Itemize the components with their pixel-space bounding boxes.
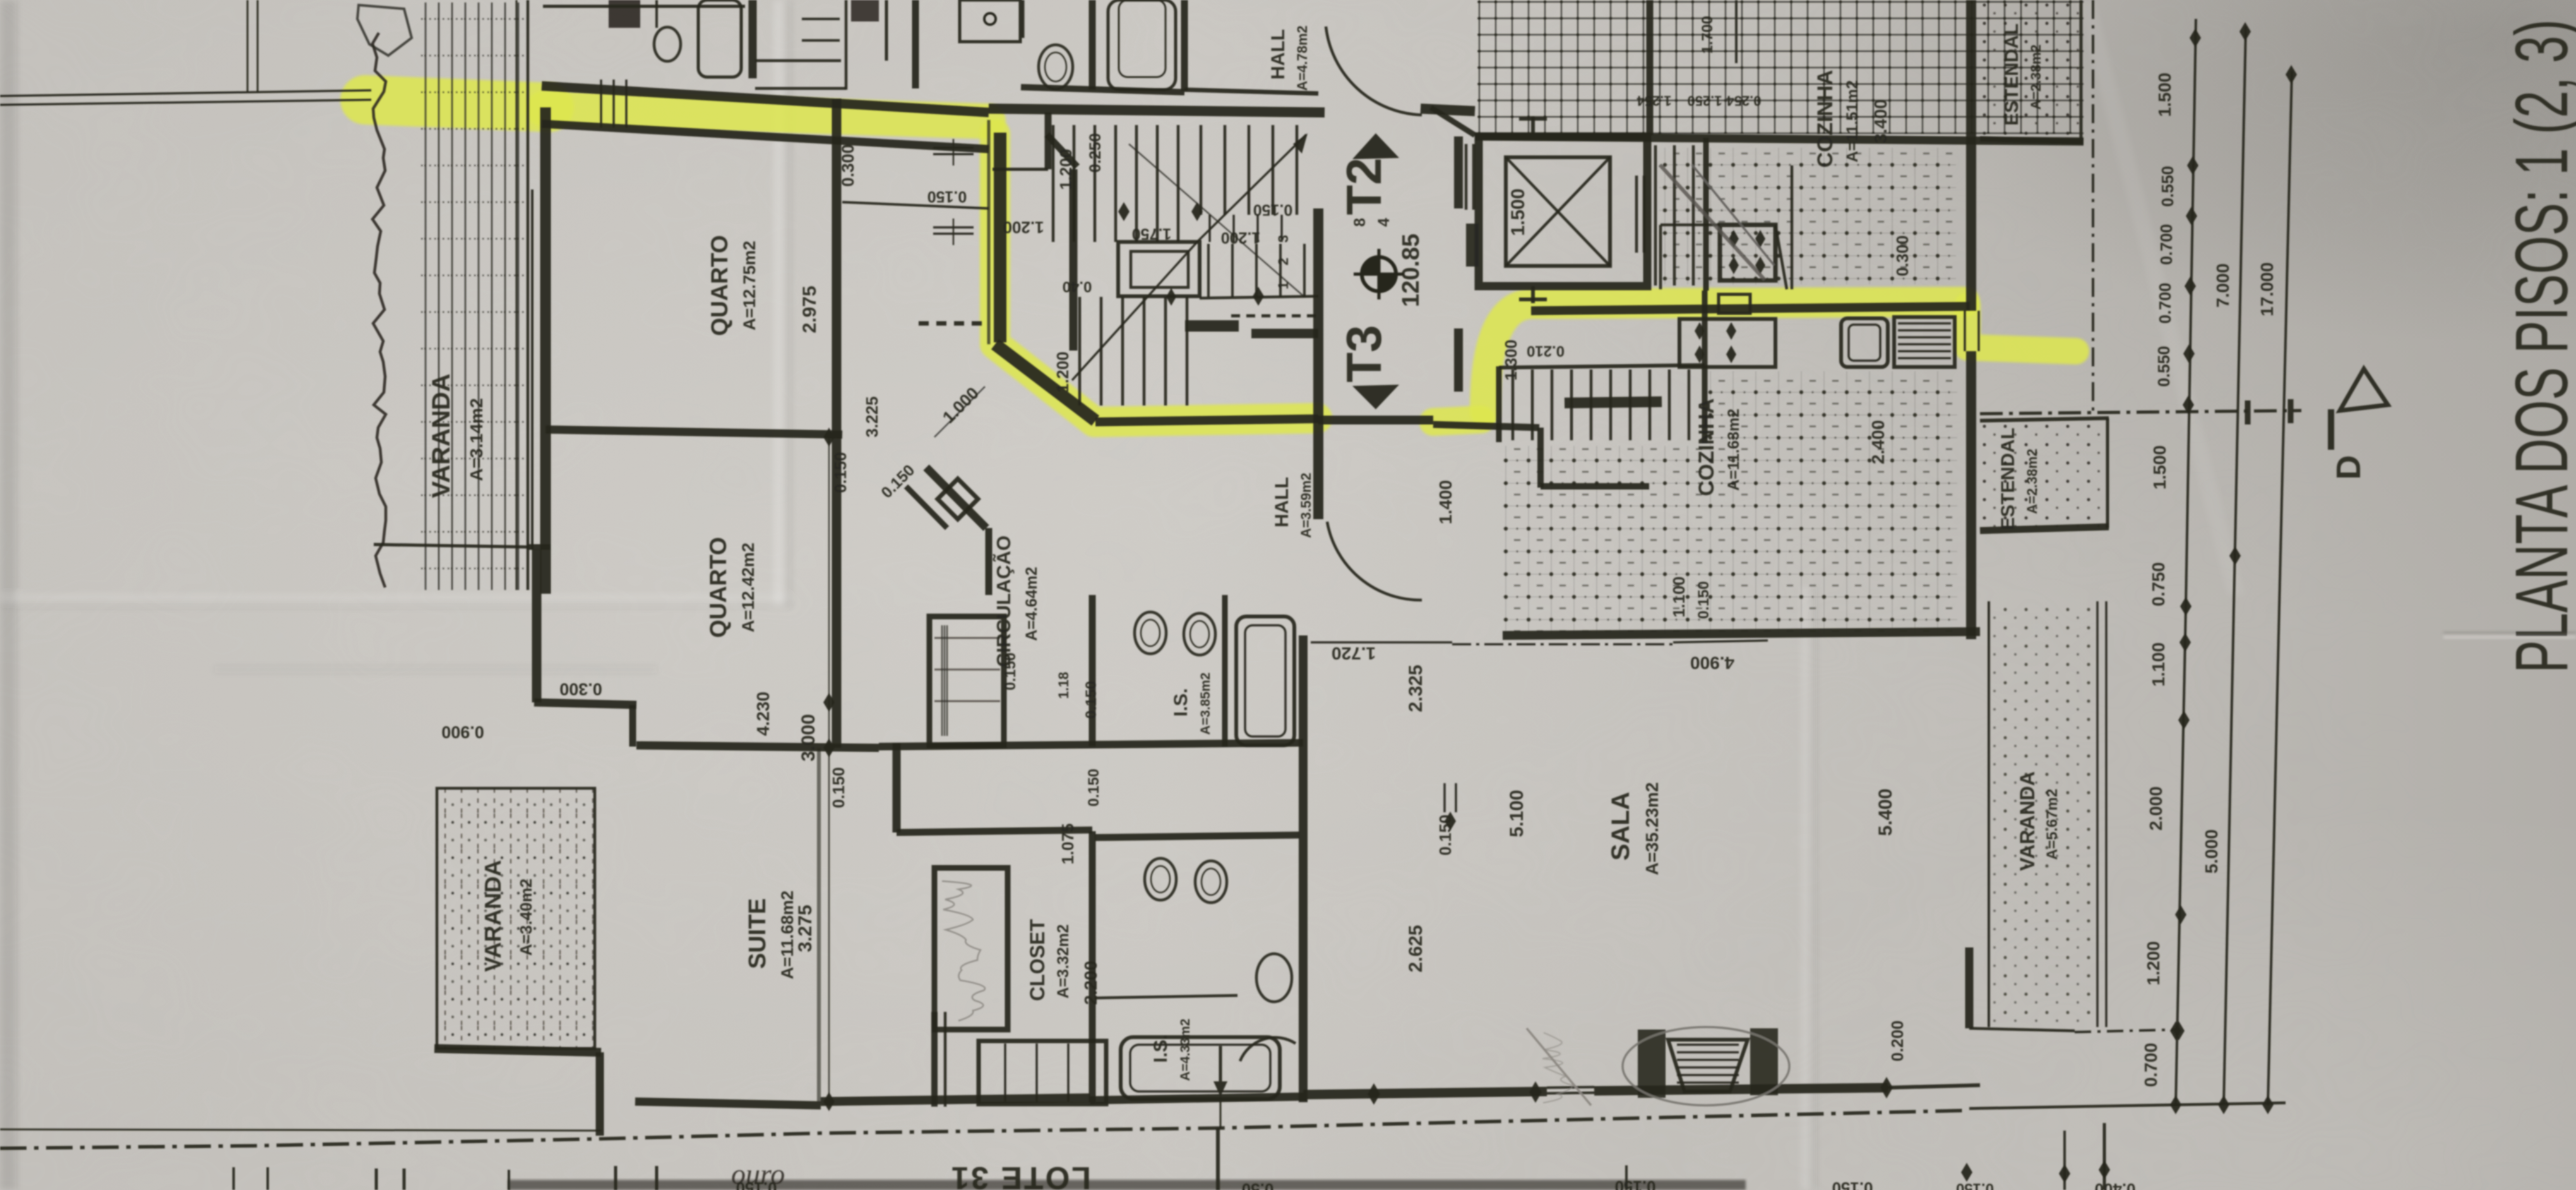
svg-text:QUARTO: QUARTO [707, 235, 732, 336]
svg-text:COZINHA: COZINHA [1695, 399, 1719, 496]
svg-text:0.700: 0.700 [2141, 1043, 2161, 1087]
svg-text:1.18: 1.18 [1056, 672, 1071, 699]
svg-text:17.000: 17.000 [2257, 262, 2277, 316]
svg-text:A=11.51m2: A=11.51m2 [1844, 80, 1861, 162]
svg-text:1.700: 1.700 [1699, 16, 1716, 54]
svg-text:A=12.75m2: A=12.75m2 [740, 241, 759, 330]
svg-text:2: 2 [1275, 258, 1291, 265]
svg-text:2.625: 2.625 [1405, 925, 1426, 972]
svg-text:0.254: 0.254 [1726, 93, 1762, 109]
svg-text:1.200: 1.200 [1221, 229, 1261, 246]
svg-text:7.000: 7.000 [2213, 263, 2233, 308]
svg-text:1.075: 1.075 [1058, 823, 1077, 864]
svg-text:A=3.40m2: A=3.40m2 [516, 879, 535, 956]
svg-text:0.150: 0.150 [1614, 1177, 1655, 1190]
svg-text:CIRCULAÇÃO: CIRCULAÇÃO [993, 536, 1015, 667]
svg-text:A=3.32m2: A=3.32m2 [1054, 924, 1072, 998]
svg-text:QUARTO: QUARTO [705, 537, 731, 638]
svg-text:A=5.67m2: A=5.67m2 [2044, 789, 2061, 860]
svg-text:4.900: 4.900 [1690, 653, 1734, 673]
svg-text:3.400: 3.400 [1871, 99, 1890, 143]
svg-text:1.100: 1.100 [2149, 642, 2168, 687]
svg-text:3.000: 3.000 [798, 714, 819, 761]
svg-text:5.400: 5.400 [1875, 788, 1896, 836]
svg-text:0.150: 0.150 [829, 767, 848, 808]
svg-text:120.85: 120.85 [1398, 234, 1424, 307]
svg-text:1.750: 1.750 [1132, 225, 1172, 243]
svg-text:T2: T2 [1336, 157, 1392, 215]
svg-text:0.210: 0.210 [1527, 342, 1565, 359]
svg-text:A=3.85m2: A=3.85m2 [1198, 673, 1213, 735]
svg-text:HALL: HALL [1272, 477, 1292, 527]
svg-text:SUITE: SUITE [744, 898, 771, 969]
svg-text:PLANTA DOS PISOS: 1 (2, 3): PLANTA DOS PISOS: 1 (2, 3) [2500, 20, 2576, 673]
svg-text:A=11.63m2: A=11.63m2 [1725, 409, 1743, 491]
svg-text:0.750: 0.750 [2149, 562, 2168, 606]
svg-text:VARANDA: VARANDA [2016, 771, 2039, 871]
svg-text:I.S.: I.S. [1171, 688, 1191, 716]
svg-text:1.500: 1.500 [2150, 445, 2169, 490]
svg-text:A=2.38m2: A=2.38m2 [2024, 448, 2040, 514]
svg-text:3.275: 3.275 [795, 905, 816, 952]
svg-text:8: 8 [1351, 218, 1369, 227]
svg-text:LOTE 31: LOTE 31 [950, 1160, 1091, 1190]
svg-text:0.550: 0.550 [2154, 346, 2173, 387]
svg-text:0.150: 0.150 [1253, 201, 1293, 219]
svg-text:5.000: 5.000 [2202, 829, 2221, 874]
svg-text:A=3.59m2: A=3.59m2 [1298, 472, 1314, 538]
svg-text:1.254: 1.254 [1637, 93, 1672, 109]
svg-text:CLOSET: CLOSET [1026, 919, 1049, 1001]
svg-text:2.325: 2.325 [1405, 664, 1426, 712]
svg-text:A=35.23m2: A=35.23m2 [1642, 782, 1662, 875]
svg-text:1.200: 1.200 [1056, 148, 1075, 189]
svg-text:1: 1 [1275, 282, 1291, 289]
svg-text:A=3.14m2: A=3.14m2 [467, 398, 486, 481]
svg-text:HALL: HALL [1268, 29, 1289, 80]
svg-text:0.150: 0.150 [1956, 1180, 1994, 1190]
svg-text:VARANDA: VARANDA [427, 373, 455, 498]
svg-text:2.400: 2.400 [1868, 420, 1888, 464]
svg-text:1.200: 1.200 [2144, 941, 2163, 985]
svg-text:A=2.38m2: A=2.38m2 [2028, 44, 2044, 109]
svg-text:A=4.78m2: A=4.78m2 [1294, 25, 1310, 90]
svg-text:0.150: 0.150 [1832, 1179, 1873, 1190]
svg-text:0.400: 0.400 [2094, 1180, 2135, 1190]
svg-text:3: 3 [1275, 235, 1291, 243]
svg-text:1.300: 1.300 [1501, 339, 1520, 380]
svg-text:A=12.42m2: A=12.42m2 [739, 543, 758, 632]
svg-text:A=4.64m2: A=4.64m2 [1023, 567, 1041, 640]
svg-text:ouro: ouro [731, 1158, 785, 1190]
svg-text:1.200: 1.200 [1003, 218, 1044, 237]
svg-text:ESTENDAL: ESTENDAL [2001, 23, 2022, 126]
svg-text:COZINHA: COZINHA [1813, 70, 1837, 168]
svg-text:2.975: 2.975 [799, 285, 820, 333]
svg-text:VARANDA: VARANDA [480, 860, 506, 971]
svg-text:1.200: 1.200 [1053, 351, 1072, 392]
svg-text:T3: T3 [1336, 325, 1392, 382]
svg-text:0.300: 0.300 [1893, 235, 1912, 276]
svg-text:0.150: 0.150 [1085, 769, 1102, 807]
svg-text:0.550: 0.550 [2158, 165, 2177, 207]
svg-text:A=4.33m2: A=4.33m2 [1178, 1019, 1193, 1081]
svg-text:0.300: 0.300 [838, 144, 857, 187]
svg-text:0.150: 0.150 [831, 452, 850, 493]
svg-text:0.700: 0.700 [2157, 224, 2176, 265]
svg-text:2.000: 2.000 [2146, 786, 2166, 831]
svg-text:1.500: 1.500 [2155, 73, 2174, 117]
svg-text:1.500: 1.500 [1508, 188, 1529, 236]
svg-text:0.700: 0.700 [2156, 282, 2174, 323]
svg-text:0.900: 0.900 [441, 723, 484, 742]
svg-text:SALA: SALA [1607, 792, 1635, 861]
svg-text:0.150: 0.150 [1002, 652, 1019, 690]
svg-text:0.300: 0.300 [559, 680, 602, 699]
svg-text:1.720: 1.720 [1332, 644, 1376, 663]
svg-text:1.250: 1.250 [1687, 93, 1722, 109]
svg-text:D: D [2330, 455, 2368, 480]
svg-text:0.50: 0.50 [1242, 1180, 1274, 1190]
svg-text:ESTENDAL: ESTENDAL [1998, 428, 2018, 530]
svg-text:5.100: 5.100 [1506, 790, 1527, 837]
svg-text:4.230: 4.230 [753, 692, 773, 736]
svg-text:0.150: 0.150 [1083, 681, 1100, 719]
svg-text:3.225: 3.225 [862, 396, 881, 437]
svg-text:1.400: 1.400 [1436, 480, 1455, 524]
svg-text:4: 4 [1375, 218, 1393, 227]
svg-text:A=11.68m2: A=11.68m2 [778, 891, 797, 979]
svg-text:0.40: 0.40 [1063, 278, 1092, 295]
svg-text:0.200: 0.200 [1888, 1020, 1907, 1061]
svg-text:0.250: 0.250 [1087, 133, 1104, 173]
svg-text:0.150: 0.150 [927, 188, 967, 205]
